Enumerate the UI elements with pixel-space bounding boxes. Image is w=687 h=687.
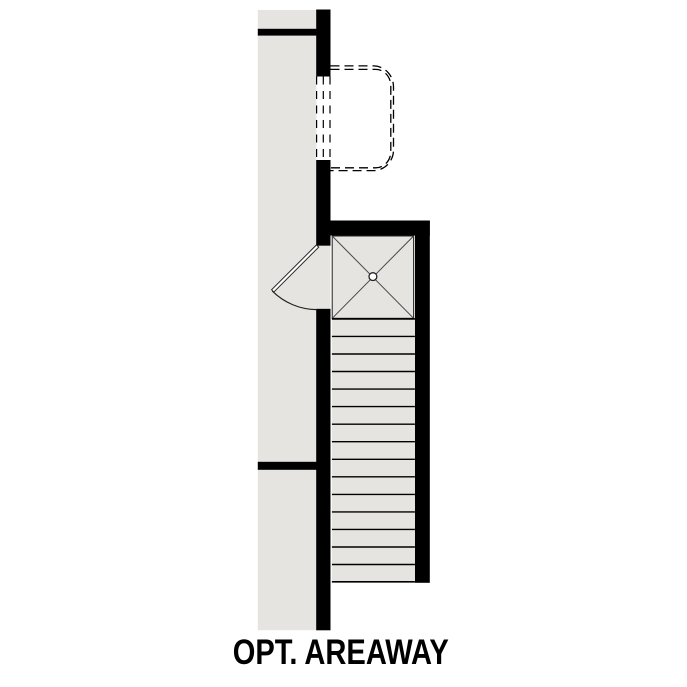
svg-text:OPT. AREAWAY: OPT. AREAWAY <box>233 633 449 672</box>
